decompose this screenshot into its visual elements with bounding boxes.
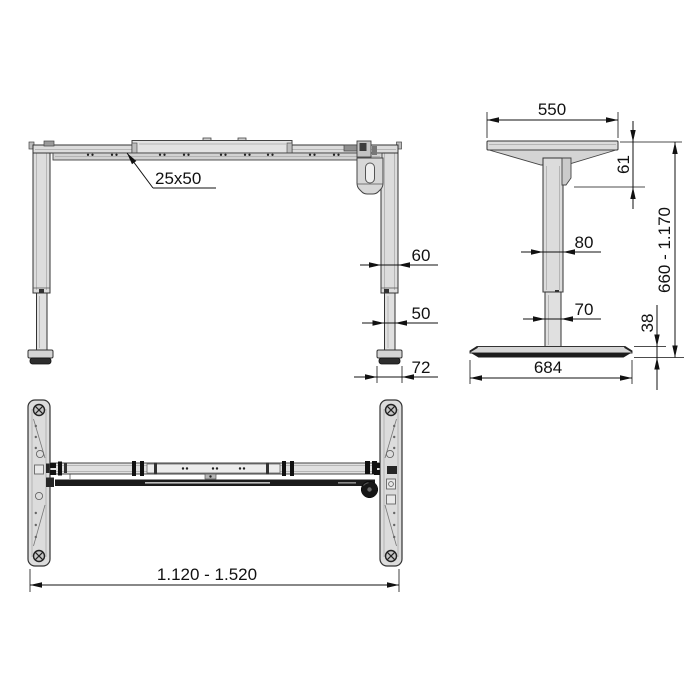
polygon-shape	[395, 320, 407, 325]
dimension-top-assembly-height: 61	[574, 121, 682, 209]
rect-shape	[64, 463, 67, 473]
circle-shape	[333, 154, 335, 156]
circle-shape	[186, 467, 188, 469]
rect-shape	[374, 470, 380, 475]
front-right-foot-glide	[379, 358, 400, 364]
desk-frame-drawing: 25x50 60 50 72	[0, 0, 700, 700]
front-left-leg-upper	[33, 145, 50, 293]
rect-shape	[365, 461, 370, 474]
rect-shape	[338, 482, 356, 484]
polygon-shape	[654, 358, 659, 370]
circle-shape	[163, 154, 165, 156]
circle-shape	[393, 512, 395, 514]
rect-shape	[58, 462, 62, 476]
rect-shape	[374, 463, 380, 468]
circle-shape	[393, 524, 395, 526]
dim-label-upper-leg-width: 60	[412, 246, 431, 265]
side-column-bracket	[562, 158, 571, 185]
circle-shape	[35, 425, 37, 427]
circle-shape	[35, 447, 37, 449]
plan-right-foot-screw	[386, 405, 397, 416]
dim-label-lower-column-width: 70	[575, 300, 594, 319]
plan-right-foot-screw	[386, 551, 397, 562]
circle-shape	[239, 467, 241, 469]
side-top-plate	[487, 141, 618, 150]
circle-shape	[35, 536, 37, 538]
circle-shape	[220, 154, 222, 156]
crossbar-inner-telescoping-rail	[132, 141, 292, 154]
plan-stabilizer-beam	[55, 480, 378, 498]
circle-shape	[243, 467, 245, 469]
polygon-shape	[30, 582, 42, 587]
polygon-shape	[672, 142, 677, 154]
front-left-leg-collar-latch	[39, 289, 44, 293]
side-foot-top	[470, 347, 632, 354]
circle-shape	[35, 524, 37, 526]
front-crossbar	[29, 138, 402, 160]
circle-shape	[209, 475, 211, 477]
polygon-shape	[487, 117, 499, 122]
front-left-foot-cap	[28, 350, 53, 358]
rect-shape	[372, 146, 377, 155]
polygon-shape	[563, 249, 575, 254]
circle-shape	[337, 154, 339, 156]
circle-shape	[216, 467, 218, 469]
polygon-shape	[672, 346, 677, 358]
circle-shape	[313, 154, 315, 156]
polygon-shape	[630, 187, 635, 199]
dim-label-foot-cap-width: 72	[412, 358, 431, 377]
dimension-top-support-width: 550	[487, 100, 618, 138]
plan-left-foot-screw	[34, 405, 45, 416]
dimension-lower-column-width: 70	[523, 300, 601, 322]
circle-shape	[393, 536, 395, 538]
front-right-leg-upper	[381, 145, 398, 293]
circle-shape	[393, 425, 395, 427]
dimension-upper-leg-width: 60	[360, 246, 438, 268]
circle-shape	[111, 154, 113, 156]
circle-shape	[393, 436, 395, 438]
rect-shape	[140, 461, 144, 476]
rect-shape	[50, 463, 56, 468]
rect-shape	[266, 463, 269, 475]
polygon-shape	[387, 582, 399, 587]
side-view: 550 61 80 70	[470, 100, 684, 390]
circle-shape	[35, 512, 37, 514]
rect-shape	[387, 479, 396, 489]
polygon-shape	[561, 316, 573, 321]
plan-left-beam-bracket	[46, 478, 54, 488]
front-left-leg-lower	[37, 293, 48, 350]
circle-shape	[87, 154, 89, 156]
control-box-slot	[366, 163, 375, 183]
dimension-height-range: 660 - 1.170	[655, 142, 678, 358]
dim-label-lower-leg-width: 50	[412, 304, 431, 323]
crossbar-right-corner-bracket	[344, 145, 357, 151]
circle-shape	[115, 154, 117, 156]
dim-label-height-range: 660 - 1.170	[655, 207, 674, 293]
plan-left-foot-screw	[34, 551, 45, 562]
polygon-shape	[654, 335, 659, 347]
front-right-leg-collar-latch	[384, 289, 389, 293]
circle-shape	[183, 154, 185, 156]
polygon-shape	[365, 374, 377, 379]
dim-label-width-range: 1.120 - 1.520	[157, 565, 257, 584]
front-right-foot-cap	[377, 350, 402, 358]
dimension-lower-leg-width: 50	[362, 304, 438, 326]
dim-label-rail-section: 25x50	[155, 169, 201, 188]
circle-shape	[159, 154, 161, 156]
rect-shape	[35, 465, 44, 474]
polygon-shape	[470, 375, 482, 380]
circle-shape	[393, 447, 395, 449]
side-upper-column	[543, 158, 563, 292]
circle-shape	[271, 154, 273, 156]
dimension-base-foot-depth: 684	[470, 358, 632, 384]
polygon-shape	[620, 375, 632, 380]
circle-shape	[224, 154, 226, 156]
rect-shape	[132, 143, 137, 153]
rect-shape	[282, 461, 286, 476]
front-view: 25x50 60 50 72	[28, 138, 438, 383]
circle-shape	[212, 467, 214, 469]
rect-shape	[287, 143, 292, 153]
plan-right-rail-bracket	[387, 466, 397, 474]
dim-label-top-assembly-height: 61	[614, 155, 633, 174]
crossbar-left-corner-bracket	[44, 141, 54, 146]
rect-shape	[145, 482, 270, 484]
plan-view: 1.120 - 1.520	[28, 400, 402, 592]
circle-shape	[91, 154, 93, 156]
side-foot	[470, 347, 632, 358]
rect-shape	[50, 470, 56, 475]
dim-label-base-foot-height: 38	[638, 314, 657, 333]
rect-shape	[360, 143, 367, 151]
dim-label-upper-column-width: 80	[575, 233, 594, 252]
circle-shape	[267, 154, 269, 156]
dim-label-top-support-width: 550	[538, 100, 566, 119]
circle-shape	[35, 436, 37, 438]
side-foot-base	[471, 353, 631, 358]
polygon-shape	[369, 262, 381, 267]
plan-right-foot	[380, 400, 402, 566]
circle-shape	[187, 154, 189, 156]
technical-drawing-page: 25x50 60 50 72	[0, 0, 700, 700]
dim-label-base-foot-depth: 684	[534, 358, 562, 377]
polygon-shape	[533, 316, 545, 321]
plan-crossbar	[50, 461, 380, 479]
polygon-shape	[606, 117, 618, 122]
circle-shape	[309, 154, 311, 156]
circle-shape	[248, 154, 250, 156]
rect-shape	[132, 461, 136, 476]
front-left-leg	[28, 145, 53, 364]
front-right-leg-lower	[385, 293, 396, 350]
dimension-frame-width-range: 1.120 - 1.520	[30, 565, 399, 592]
circle-shape	[182, 467, 184, 469]
rect-shape	[154, 463, 157, 475]
rect-shape	[387, 495, 396, 504]
front-left-foot-glide	[30, 358, 51, 364]
polygon-shape	[630, 130, 635, 142]
circle-shape	[367, 487, 371, 491]
control-box	[357, 158, 383, 194]
circle-shape	[244, 154, 246, 156]
polygon-shape	[398, 262, 410, 267]
polygon-shape	[373, 320, 385, 325]
rect-shape	[290, 461, 294, 476]
polygon-shape	[531, 249, 543, 254]
